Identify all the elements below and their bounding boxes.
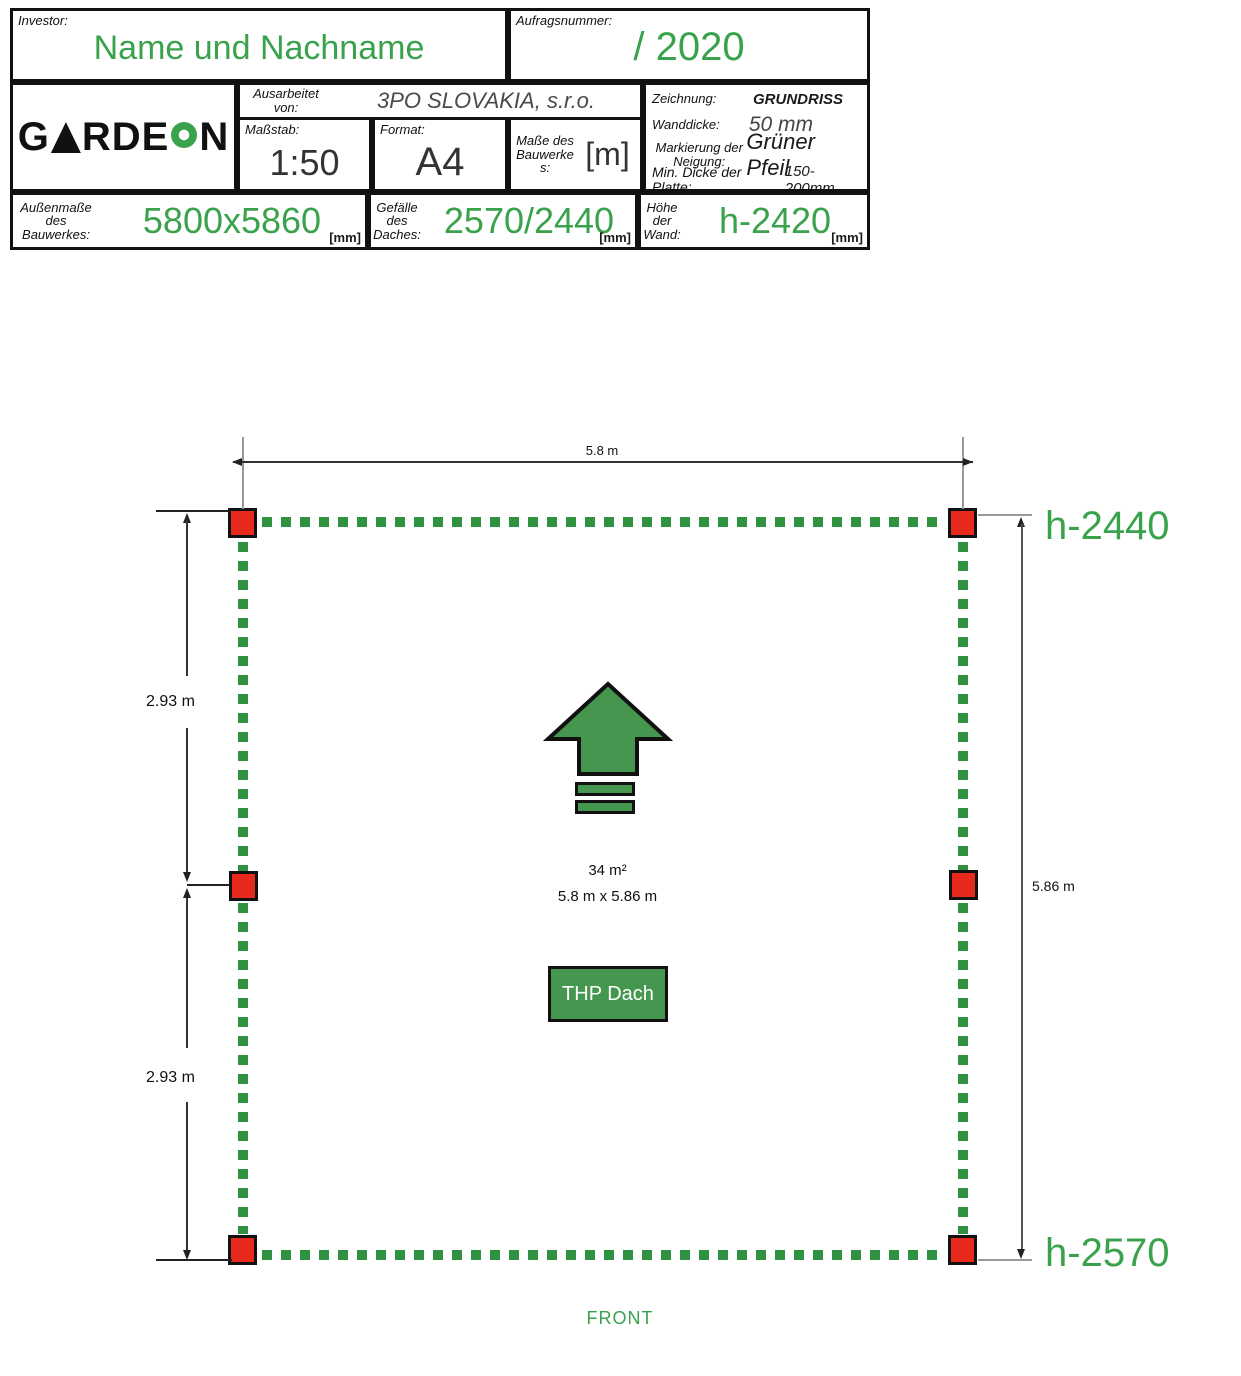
logo-text-rde: RDE [82, 115, 169, 160]
height-top-label: h-2440 [1045, 504, 1170, 549]
dim-right-label: 5.86 m [1032, 878, 1075, 894]
end-line-top-left [156, 510, 230, 512]
post-top-left [228, 508, 257, 538]
roof-slope-unit: [mm] [599, 230, 631, 245]
height-bottom-label: h-2570 [1045, 1231, 1170, 1276]
dim-top-label: 5.8 m [560, 443, 644, 458]
post-top-right [948, 508, 977, 538]
investor-value: Name und Nachname [13, 29, 505, 68]
roof-slope-cell: Gefälle des Daches: 2570/2440 [mm] [371, 195, 635, 247]
arrowhead-left-icon [232, 458, 242, 466]
wall-top [262, 517, 946, 527]
post-bottom-left [228, 1235, 257, 1265]
scale-label: Maßstab: [245, 123, 299, 137]
post-bottom-right [948, 1235, 977, 1265]
dim-line-left-1 [186, 520, 188, 676]
gardeon-logo: GRDEN [13, 85, 234, 189]
wall-height-unit: [mm] [831, 230, 863, 245]
order-number-value: / 2020 [511, 25, 867, 70]
tick-mid-left [187, 884, 230, 886]
drawing-type-label: Zeichnung: [652, 92, 716, 106]
investor-label: Investor: [18, 14, 68, 28]
outer-dims-label: Außenmaße des Bauwerkes: [13, 201, 99, 242]
drawing-type-value: GRUNDRISS [753, 91, 843, 108]
dim-line-right [1021, 524, 1023, 1252]
outer-dims-cell: Außenmaße des Bauwerkes: 5800x5860 [mm] [13, 195, 365, 247]
building-units-value: [m] [575, 136, 640, 173]
dim-line-top [233, 461, 973, 463]
arrowhead-up-icon [183, 888, 191, 898]
scale-cell: Maßstab: 1:50 [240, 120, 369, 189]
dim-line-left-4 [186, 1102, 188, 1252]
building-units-cell: Maße des Bauwerkes: [m] [511, 120, 640, 189]
green-up-arrow-icon [543, 681, 673, 777]
front-label: FRONT [548, 1308, 692, 1329]
min-plate-value: 150-200mm [785, 163, 861, 189]
logo-cell: GRDEN [13, 85, 234, 189]
drawing-page: Investor: Name und Nachname Aufragsnumme… [0, 0, 1241, 1376]
triangle-a-icon [51, 122, 81, 153]
dim-line-left-3 [186, 898, 188, 1048]
outer-dims-value: 5800x5860 [99, 200, 365, 242]
prepared-by-cell: Ausarbeitet von: 3PO SLOVAKIA, s.r.o. [240, 85, 640, 117]
wall-height-cell: Höhe der Wand: h-2420 [mm] [641, 195, 867, 247]
dim-left-upper-label: 2.93 m [146, 693, 216, 711]
post-mid-right [949, 870, 978, 900]
arrowhead-down-icon [183, 872, 191, 882]
roof-type-tag: THP Dach [548, 966, 668, 1022]
prepared-by-value: 3PO SLOVAKIA, s.r.o. [332, 88, 640, 114]
min-plate-label: Min. Dicke der Platte: [652, 165, 779, 189]
dim-left-lower-label: 2.93 m [146, 1069, 216, 1087]
roof-type-label: THP Dach [562, 983, 654, 1006]
title-block: Investor: Name und Nachname Aufragsnumme… [10, 8, 870, 250]
arrowhead-down-icon [1017, 1249, 1025, 1259]
ext-line-right-bottom [978, 1259, 1032, 1261]
investor-cell: Investor: Name und Nachname [13, 11, 505, 79]
building-units-label: Maße des Bauwerkes: [511, 134, 575, 175]
arrowhead-right-icon [963, 458, 973, 466]
dim-line-left-2 [186, 728, 188, 874]
wall-bottom [262, 1250, 946, 1260]
ext-line-top-right [962, 437, 964, 509]
wall-thickness-label: Wanddicke: [652, 118, 720, 132]
prepared-by-label: Ausarbeitet von: [240, 87, 332, 114]
arrow-bar-1 [575, 782, 635, 796]
post-mid-left [229, 871, 258, 901]
format-value: A4 [375, 140, 505, 185]
arrow-bar-2 [575, 800, 635, 814]
ext-line-right-top [978, 514, 1032, 516]
scale-value: 1:50 [240, 142, 369, 184]
drawing-info-cell: Zeichnung: GRUNDRISS Wanddicke: 50 mm Ma… [646, 85, 867, 189]
end-line-bottom-left [156, 1259, 232, 1261]
outer-dims-unit: [mm] [329, 230, 361, 245]
order-number-cell: Aufragsnummer: / 2020 [511, 11, 867, 79]
wall-height-label: Höhe der Wand: [641, 201, 683, 242]
format-cell: Format: A4 [375, 120, 505, 189]
green-donut-o-icon [171, 122, 197, 148]
size-label: 5.8 m x 5.86 m [520, 888, 695, 905]
area-label: 34 m² [540, 862, 675, 879]
format-label: Format: [380, 123, 425, 137]
ext-line-top-left [242, 437, 244, 509]
roof-slope-label: Gefälle des Daches: [371, 201, 423, 242]
logo-text-g: G [18, 115, 50, 160]
logo-text-n: N [199, 115, 229, 160]
